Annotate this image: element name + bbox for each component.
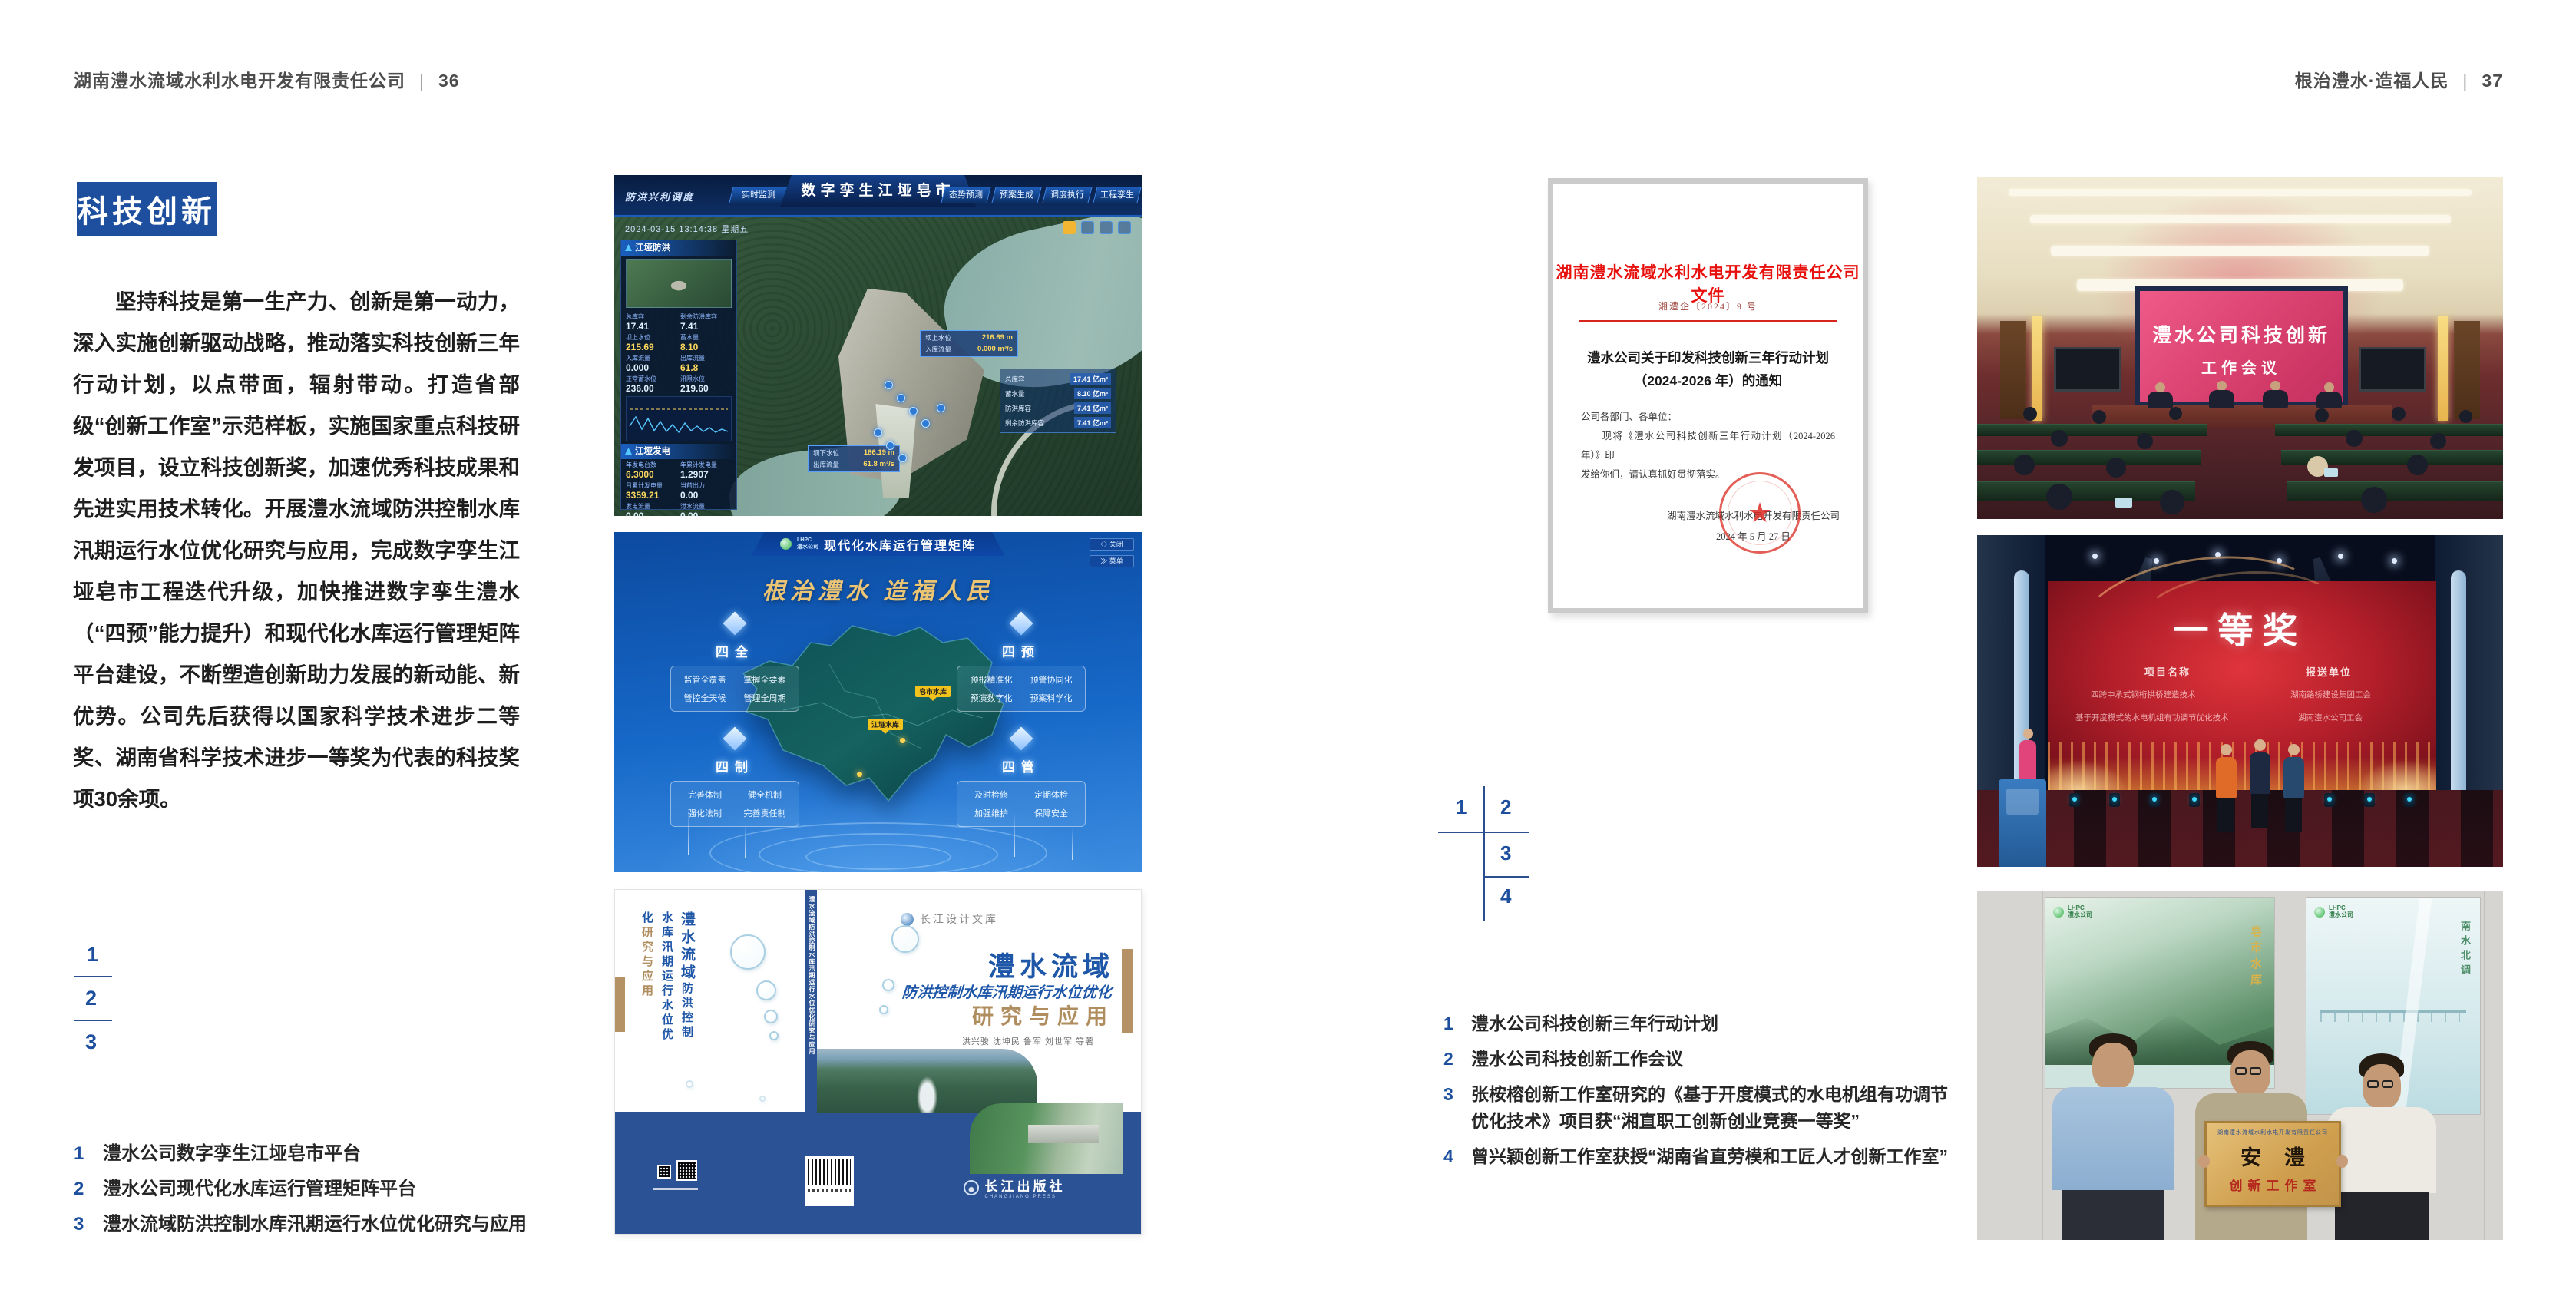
stage-fixture (2404, 793, 2415, 807)
map-marker-dot (857, 772, 862, 777)
series-name: 长江设计文库 (920, 911, 998, 927)
locate-icon (1100, 221, 1113, 234)
document-number: 湘澧企〔2024〕9 号 (1553, 299, 1863, 312)
audience-head (2407, 455, 2428, 475)
qr-caption-line (653, 1188, 698, 1190)
power-stats: 年发电台数6.3000 年累计发电量1.2907 月累计发电量3359.21 当… (621, 459, 736, 516)
person3-torso (2327, 1107, 2436, 1193)
stage-light (2154, 558, 2159, 564)
upstream-level-tag: 坝上水位216.69 m 入库流量0.000 m³/s (920, 330, 1018, 357)
matrix-title: 现代化水库运行管理矩阵 (824, 535, 976, 554)
ceiling-light-strip (2030, 215, 2451, 223)
tab-situation-forecast: 态势预测 (941, 187, 990, 203)
tab-plan-generate: 预案生成 (991, 187, 1041, 203)
screen-title-line2: 工作会议 (2140, 348, 2343, 378)
person1-head (2092, 1043, 2134, 1090)
awardee-suit (2246, 739, 2273, 828)
tab-project-twin: 工程孪生 (1093, 187, 1141, 203)
lhpc-logo: LHPC澧水公司 (2314, 905, 2353, 919)
light-pillar (1072, 828, 1073, 860)
gate-marker (909, 407, 918, 415)
series-logo-row: 长江设计文库 (901, 911, 998, 927)
matrix-slogan: 根治澧水 造福人民 (614, 572, 1142, 606)
book-title: 澧水流域 (907, 945, 1114, 984)
golden-skyline (2048, 742, 2436, 790)
caption-text: 澧水公司数字孪生江垭皂市平台 (103, 1142, 361, 1165)
podium (1999, 779, 2046, 867)
stage-light (2092, 554, 2098, 559)
figure-index-divider (1438, 832, 1529, 833)
right-captions: 1 澧水公司科技创新三年行动计划 2 澧水公司科技创新工作会议 3 张桉榕创新工… (1443, 1010, 1948, 1170)
book-title2: 研究与应用 (950, 1000, 1114, 1030)
audience-desk (1977, 450, 2201, 465)
spine-title: 澧水流域防洪控制水库汛期运行水位优化研究与应用 (806, 896, 816, 1149)
dashboard-timestamp: 2024-03-15 13:14:38 星期五 (625, 223, 749, 235)
caption-number: 1 (74, 1142, 103, 1165)
audience-head (2346, 430, 2363, 447)
panel-icon (723, 726, 746, 750)
audience-head (2014, 455, 2035, 475)
photo-innovation-studio-plaque: LHPC澧水公司 皂市水库 LHPC澧水公司 南水北调 湖南澧水流域水利水电开发… (1977, 891, 2503, 1240)
gate-marker (874, 428, 882, 437)
wall-tv-screen (2054, 347, 2121, 392)
lhpc-logo-text: LHPC澧水公司 (797, 537, 818, 550)
hand (2198, 1155, 2210, 1168)
document-body: 公司各部门、各单位： 现将《澧水公司科技创新三年行动计划（2024-2026 年… (1581, 408, 1835, 484)
left-data-panel: 江垭防洪 总库容17.41 剩余防洪库容7.41 坝上水位215.69 蓄水量8… (620, 240, 737, 510)
submitting-unit: 湖南路桥建设集团工会 (2290, 689, 2371, 700)
panel-siguan: 四管 及时检修定期体检 加强维护保障安全 (957, 730, 1086, 827)
figure-number: 2 (85, 987, 97, 1010)
caption-number: 2 (74, 1178, 103, 1201)
left-page-header: 湖南澧水流域水利水电开发有限责任公司|36 (74, 66, 460, 92)
audience-head (2160, 490, 2184, 514)
person2-glasses-icon (2235, 1067, 2261, 1075)
audience-head (2106, 458, 2126, 478)
project-name: 基于开度模式的水电机组有功调节优化技术 (2075, 712, 2229, 723)
lhpc-logo-icon (2314, 907, 2325, 918)
poster-right-caption: 南水北调 (2458, 921, 2472, 979)
caption-row: 4 曾兴颖创新工作室获授“湖南省直劳模和工匠人才创新工作室” (1443, 1143, 1948, 1170)
audience-head (2046, 484, 2072, 510)
bubble (769, 1031, 779, 1040)
poster-left-caption: 皂市水库 (2247, 925, 2264, 990)
screen-title-line1: 澧水公司科技创新 (2140, 291, 2343, 348)
header-divider: | (2462, 71, 2468, 91)
stage-floor (1977, 790, 2503, 867)
gate-marker (898, 454, 907, 462)
page-number-right: 37 (2482, 71, 2503, 91)
tab-realtime-monitor: 实时监测 (729, 187, 788, 203)
gate-marker (886, 441, 894, 450)
stage-fixture (2364, 793, 2375, 807)
figure-number: 3 (1500, 841, 1511, 865)
wall-seam (2042, 891, 2043, 1240)
audience-head (2361, 487, 2387, 513)
gate-marker (937, 404, 945, 412)
caption-row: 3 澧水流域防洪控制水库汛期运行水位优化研究与应用 (74, 1213, 527, 1236)
figure-index-divider (74, 1020, 112, 1021)
caption-text: 澧水流域防洪控制水库汛期运行水位优化研究与应用 (103, 1213, 527, 1236)
publisher-logo-icon (964, 1180, 979, 1195)
layers-icon (1081, 221, 1094, 234)
panel-power-title: 江垭发电 (621, 444, 736, 459)
figure-official-document: 湖南澧水流域水利水电开发有限责任公司文件 湘澧企〔2024〕9 号 澧水公司关于… (1548, 178, 1868, 613)
panel-sizhi: 四制 完善体制健全机制 强化法制完善责任制 (670, 730, 799, 827)
official-seal: ★ (1719, 472, 1801, 554)
map-marker-dot (900, 738, 905, 743)
matrix-header: LHPC澧水公司 现代化水库运行管理矩阵 (752, 532, 1005, 556)
figure-number: 1 (87, 943, 98, 967)
wall-light-column (2438, 316, 2448, 421)
audience-head (2023, 407, 2037, 421)
stage-fixture (2324, 793, 2335, 807)
bubble (882, 979, 894, 991)
water-level-chart (626, 396, 732, 441)
person3-glasses-icon (2367, 1080, 2393, 1088)
photo-tech-innovation-meeting: 澧水公司科技创新 工作会议 (1977, 177, 2503, 519)
person3-pants (2335, 1192, 2429, 1240)
project-name: 四跨中承式钢桁拱桥建造技术 (2091, 689, 2196, 700)
bubble (764, 1010, 778, 1023)
stage-fixture (2149, 793, 2160, 807)
caption-number: 3 (74, 1213, 103, 1236)
seal-star-icon: ★ (1748, 499, 1772, 527)
bubble (686, 1080, 693, 1088)
person (2209, 390, 2234, 408)
cover-photo-dam-downstream (970, 1103, 1123, 1174)
qr-code (676, 1160, 697, 1181)
gate-marker (885, 381, 893, 389)
gate-marker (897, 394, 905, 402)
settings-icon (1118, 221, 1131, 234)
gate-marker (921, 419, 930, 428)
audience-head (2392, 407, 2406, 421)
audience-head (2137, 433, 2153, 449)
bubble (879, 1005, 888, 1014)
person1-pants (2062, 1190, 2164, 1240)
person1-torso (2052, 1087, 2174, 1190)
wall-seam (2484, 891, 2485, 1240)
caption-row: 1 澧水公司科技创新三年行动计划 (1443, 1010, 1948, 1037)
figure-index-vline (1483, 786, 1485, 921)
figure-number: 3 (85, 1030, 97, 1054)
tissue-box (2115, 498, 2132, 508)
audience-head (2430, 433, 2446, 449)
publisher-name: 长江出版社 (985, 1175, 1066, 1195)
document-title: 澧水公司关于印发科技创新三年行动计划 （2024-2026 年）的通知 (1553, 346, 1863, 392)
innovation-studio-plaque: 湖南澧水流域水利水电开发有限责任公司 安澧 创新工作室 (2204, 1121, 2341, 1207)
host (2014, 729, 2042, 785)
col2-header: 报送单位 (2306, 664, 2352, 679)
bubble (756, 980, 776, 1000)
series-logo-icon (901, 913, 914, 926)
figure-reservoir-matrix-platform: LHPC澧水公司 现代化水库运行管理矩阵 ◇ 关闭 ≫ 菜单 根治澧水 造福人民… (614, 532, 1142, 872)
bridge-graphic (2320, 1010, 2466, 1013)
person (2148, 392, 2173, 408)
wall-tv-screen (2359, 347, 2426, 392)
body-paragraph: 坚持科技是第一生产力、创新是第一动力，深入实施创新驱动战略，推动落实科技创新三年… (73, 281, 520, 820)
figure-index-divider (1483, 876, 1529, 878)
submitting-unit: 湖南澧水公司工会 (2298, 712, 2363, 723)
light-pillar (688, 808, 689, 855)
flood-stats: 总库容17.41 剩余防洪库容7.41 坝上水位215.69 蓄水量8.10 入… (621, 311, 736, 395)
person (2316, 392, 2342, 408)
stage-fixture (2069, 793, 2080, 807)
audience-head (2092, 410, 2106, 424)
figure-index-divider (74, 976, 112, 977)
panel-icon (1009, 611, 1033, 635)
audience-desk (1977, 424, 2207, 436)
bubble (759, 1096, 766, 1102)
plaque-main-text: 安澧 (2207, 1136, 2339, 1171)
slogan: 根治澧水·造福人民 (2295, 71, 2449, 91)
figure-digital-twin-platform: 防洪兴利调度 实时监测 洪水预报 防洪预警 数字孪生江垭皂市 态势预测 预案生成… (614, 175, 1142, 516)
back-tan-bar (615, 977, 625, 1032)
audience-desk (2287, 481, 2503, 501)
lhpc-logo-icon (2053, 907, 2064, 918)
panel-flood-title: 江垭防洪 (621, 240, 736, 256)
header-divider: | (419, 71, 425, 91)
ceiling-light-strip (2051, 246, 2429, 256)
menu-button: ≫ 菜单 (1090, 555, 1134, 567)
bubble (730, 934, 766, 970)
left-captions: 1 澧水公司数字孪生江垭皂市平台 2 澧水公司现代化水库运行管理矩阵平台 3 澧… (74, 1142, 527, 1236)
figure-number: 1 (1456, 795, 1467, 819)
stage-light (2392, 558, 2397, 564)
stage-light (2338, 554, 2343, 559)
right-page-header: 根治澧水·造福人民|37 (2295, 66, 2503, 92)
map-marker-zaoshi: 皂市水库 (915, 686, 951, 697)
downstream-level-tag: 坝下水位186.19 m 出库流量61.8 m³/s (808, 445, 900, 472)
wall-panel (2000, 321, 2026, 419)
audience-head (2169, 407, 2182, 420)
book-authors: 洪兴骏 沈坤民 鲁军 刘世军 等著 (942, 1035, 1114, 1047)
plaque-header: 湖南澧水流域水利水电开发有限责任公司 (2207, 1123, 2339, 1136)
figure-number: 4 (1500, 884, 1511, 908)
tab-dispatch-execute: 调度执行 (1042, 187, 1092, 203)
hand (2336, 1155, 2348, 1168)
tissue-box (2324, 468, 2338, 477)
awardee-orange (2212, 744, 2240, 832)
barcode (805, 1156, 854, 1206)
section-title-box: 科技创新 (77, 182, 217, 236)
light-pillar (745, 824, 746, 858)
caption-row: 3 张桉榕创新工作室研究的《基于开度模式的水电机组有功调节 优化技术》项目获“湘… (1443, 1081, 1948, 1135)
projection-screen: 澧水公司科技创新 工作会议 (2135, 286, 2348, 407)
ripple-ring (805, 844, 951, 870)
module-label: 防洪兴利调度 (625, 189, 694, 203)
dam-thumbnail (626, 259, 732, 308)
audience-head (2315, 408, 2329, 422)
front-tan-bar (1122, 949, 1133, 1033)
document-red-rule (1579, 320, 1837, 322)
plaque-sub-text: 创新工作室 (2207, 1171, 2339, 1194)
caption-text-two-lines: 张桉榕创新工作室研究的《基于开度模式的水电机组有功调节 优化技术》项目获“湘直职… (1471, 1081, 1948, 1135)
capacity-info-panel: 总库容17.41 亿m³ 蓄水量8.10 亿m³ 防洪库容7.41 亿m³ 剩余… (1000, 369, 1116, 433)
stage-fixture (2109, 793, 2120, 807)
caption-row: 1 澧水公司数字孪生江垭皂市平台 (74, 1142, 527, 1165)
publisher-block: 长江出版社 CHANGJIANG PRESS (945, 1175, 1083, 1199)
lhpc-logo: LHPC澧水公司 (2053, 905, 2092, 919)
audience-head (2051, 430, 2068, 447)
publisher-name-en: CHANGJIANG PRESS (985, 1195, 1066, 1199)
awardee-navy (2280, 744, 2307, 832)
ceiling-light-strip (2009, 189, 2472, 196)
panel-icon (723, 611, 746, 635)
panel-siquan: 四全 监管全覆盖掌握全要素 管控全天候管理全周期 (670, 615, 799, 712)
wall-panel (2454, 321, 2480, 419)
qr-code (657, 1165, 671, 1179)
section-title: 科技创新 (78, 187, 216, 231)
audience-head (2459, 410, 2472, 423)
photo-award-ceremony: 一等奖 项目名称 报送单位 四跨中承式钢桁拱桥建造技术 基于开度模式的水电机组有… (1977, 535, 2503, 867)
user-icon (1063, 221, 1076, 234)
wall-light-column (2032, 316, 2042, 421)
page-number-left: 36 (438, 71, 460, 91)
lhpc-logo-icon (780, 538, 792, 550)
prize-title: 一等奖 (1977, 603, 2503, 653)
figure-book-cover: 澧水流域防洪控制水库汛期运行水位优化研究与应用 澧水流域防洪控制水库汛期运行水位… (614, 889, 1142, 1235)
person (2263, 390, 2288, 408)
book-subtitle: 防洪控制水库汛期运行水位优化 (901, 980, 1123, 1002)
panel-siyu: 四预 预报精准化预警协同化 预演数字化预案科学化 (957, 615, 1086, 712)
close-button: ◇ 关闭 (1090, 538, 1134, 551)
light-pillar (1014, 812, 1015, 857)
caption-row: 2 澧水公司科技创新工作会议 (1443, 1046, 1948, 1073)
panel-icon (1009, 726, 1033, 750)
back-cover-title: 澧水流域防洪控制水库汛期运行水位优化研究与应用 (637, 911, 696, 1048)
col1-header: 项目名称 (2144, 664, 2191, 679)
figure-number: 2 (1500, 795, 1511, 819)
caption-row: 2 澧水公司现代化水库运行管理矩阵平台 (74, 1178, 527, 1201)
stage-fixture (2189, 793, 2200, 807)
caption-text: 澧水公司现代化水库运行管理矩阵平台 (103, 1178, 416, 1201)
company-name: 湖南澧水流域水利水电开发有限责任公司 (74, 71, 405, 91)
map-marker-jiangya: 江垭水库 (868, 719, 903, 730)
audience-desk (2275, 424, 2503, 436)
